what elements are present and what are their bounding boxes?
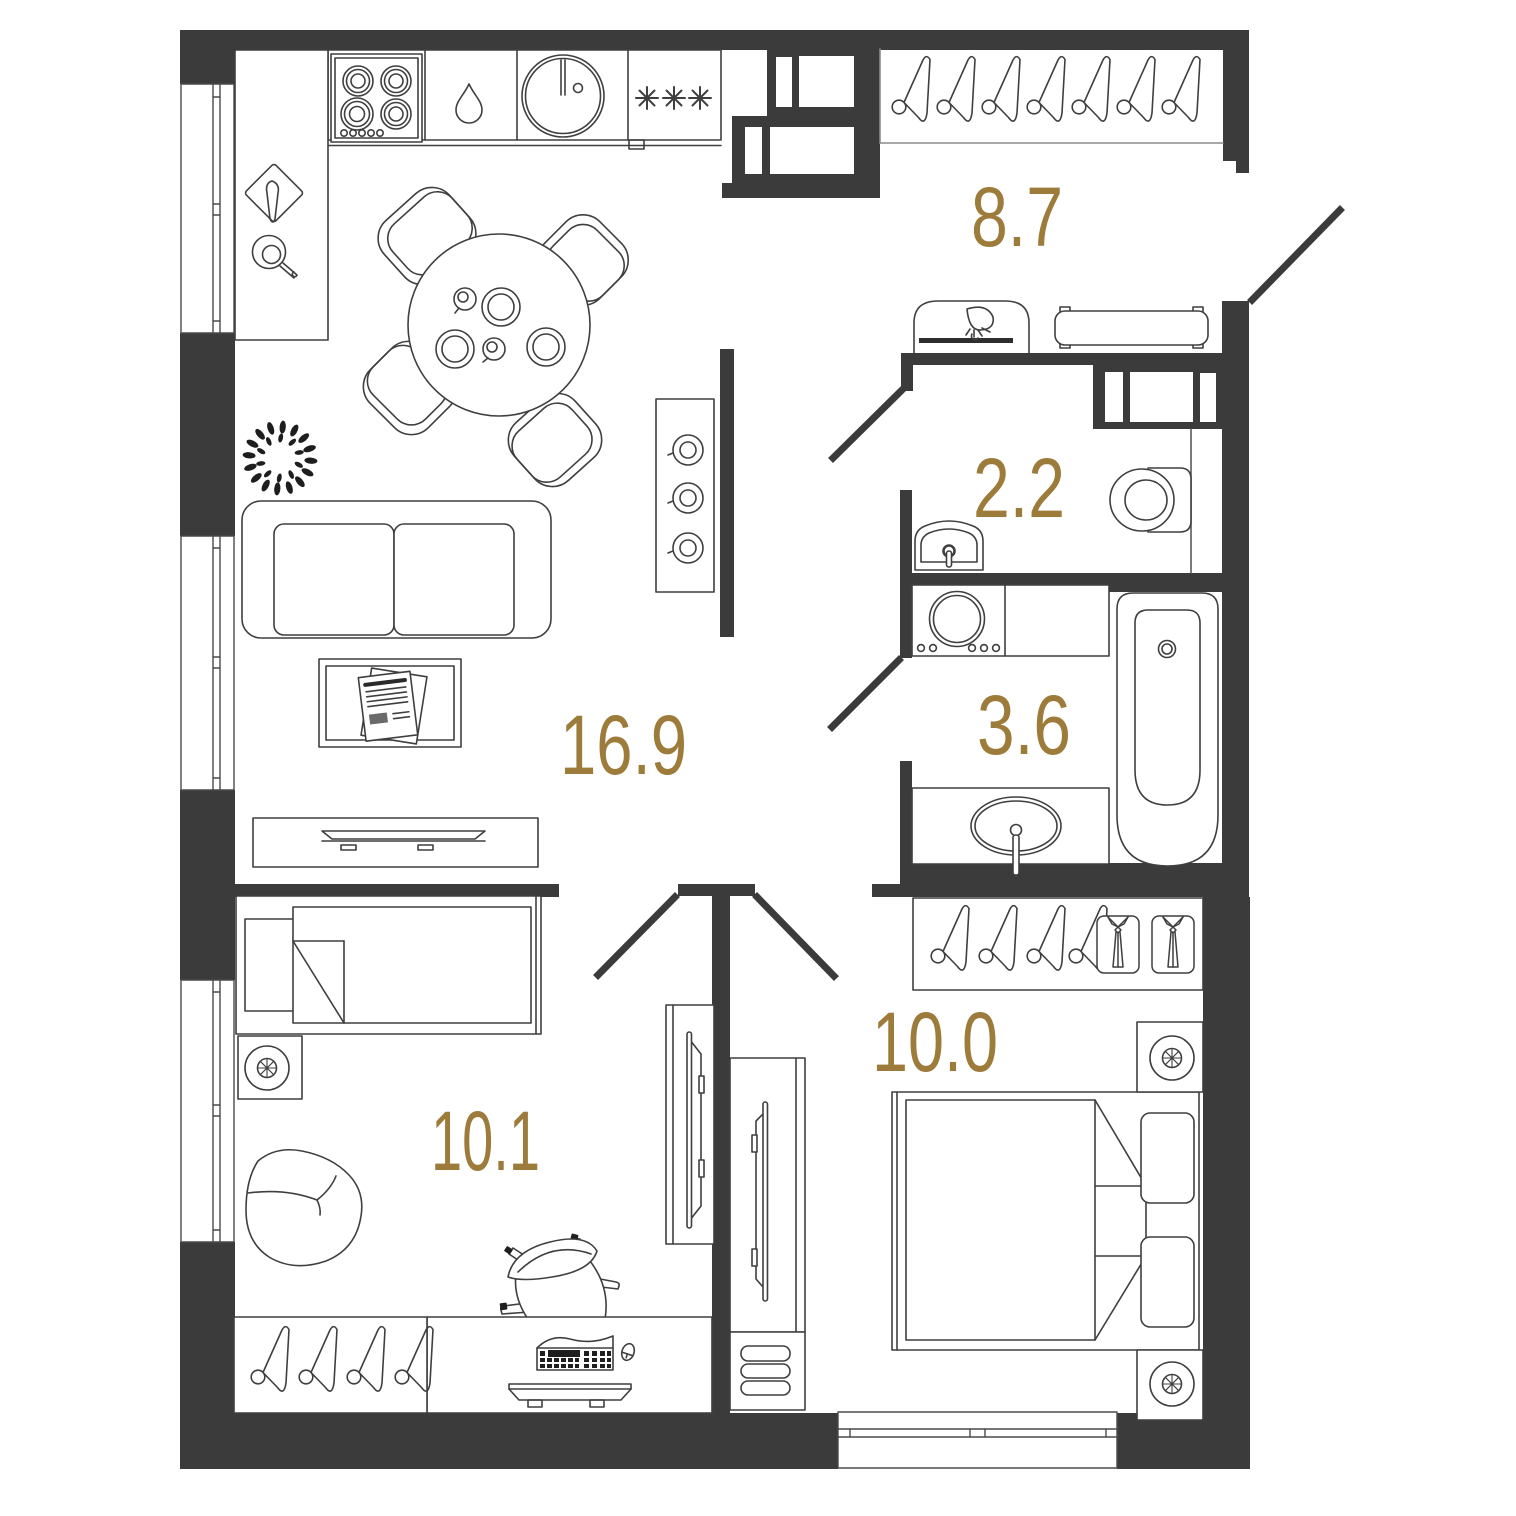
svg-text:10.1: 10.1 [431,1094,540,1188]
svg-text:16.9: 16.9 [560,698,687,792]
svg-text:3.6: 3.6 [977,678,1071,772]
svg-text:2.2: 2.2 [973,441,1065,535]
svg-text:8.7: 8.7 [971,170,1063,264]
svg-text:10.0: 10.0 [872,995,998,1089]
